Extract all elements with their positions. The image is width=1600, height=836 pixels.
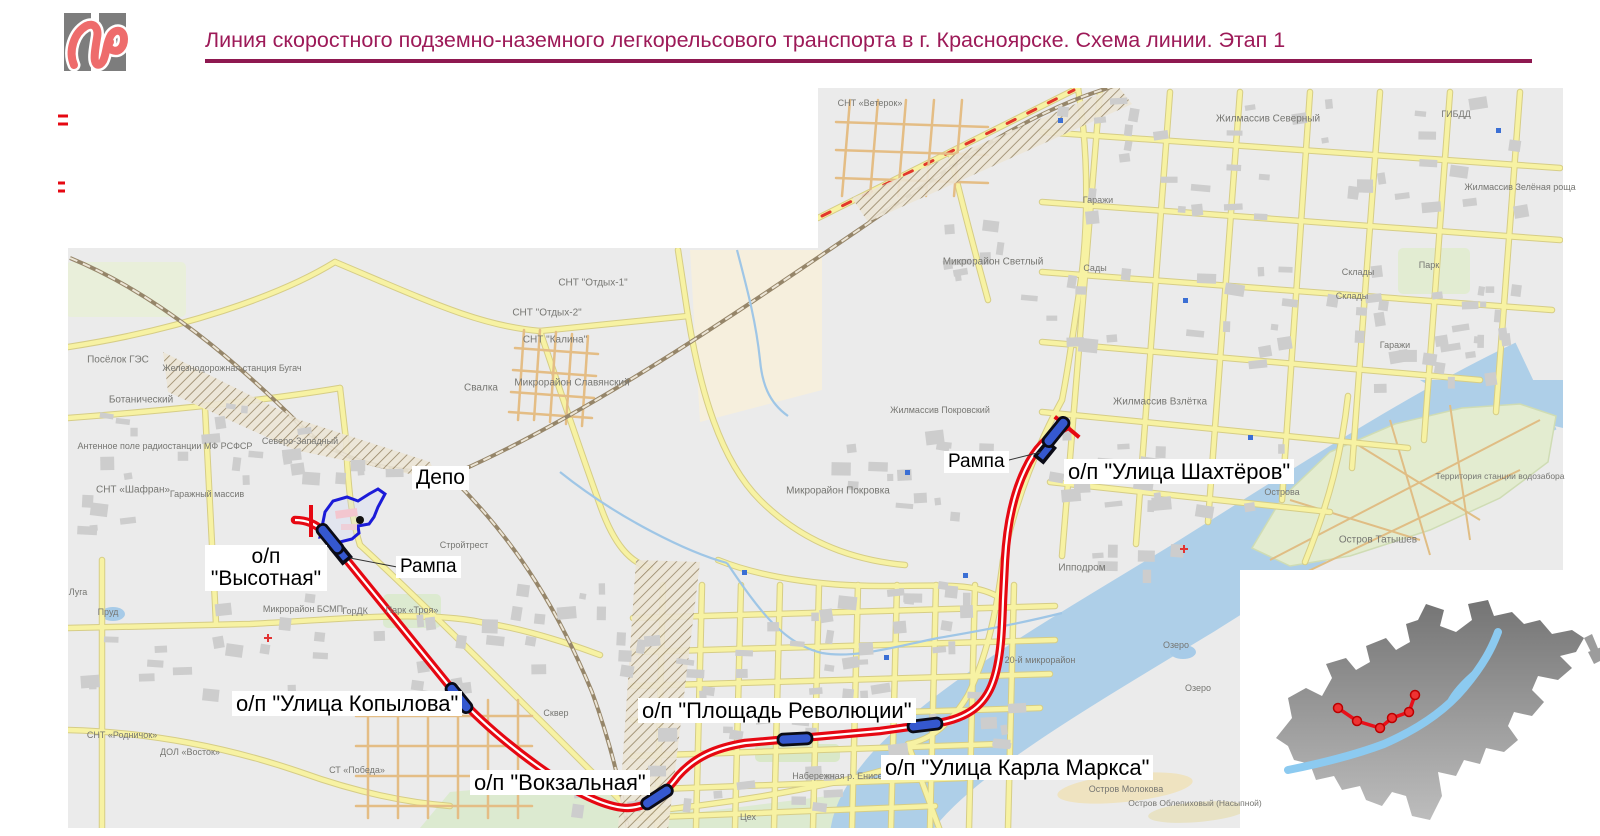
map-place-label: Остров Татышев [1339, 535, 1417, 546]
map-place-label: Острова [1264, 487, 1299, 497]
map-place-label: Микрорайон Славянский [514, 378, 629, 389]
map-place-label: Жилмассив Северный [1216, 114, 1320, 125]
station-capsule [778, 733, 813, 746]
station-label-shakhtyorov: о/п "Улица Шахтёров" [1064, 459, 1294, 484]
station-label-karla-marksa: о/п "Улица Карла Маркса" [881, 755, 1153, 780]
map-place-label: Склады [1336, 291, 1369, 301]
inset-station-dot [1353, 717, 1362, 726]
station-label-vysotnaya: о/п "Высотная" [205, 545, 327, 591]
map-place-label: Гаражи [1083, 195, 1113, 205]
map-place-label: Территория станции водозабора [1435, 471, 1564, 481]
map-place-label: Пруд [98, 607, 119, 617]
map-place-label: СНТ "Отдых-2" [512, 308, 581, 319]
map-place-label: Северо-Западный [262, 436, 338, 446]
map-place-label: Жилмассив Покровский [890, 405, 990, 415]
inset-station-dot [1388, 714, 1397, 723]
map-place-label: Остров Облепиховый (Насыпной) [1128, 798, 1262, 808]
metro-logo-icon [64, 13, 128, 73]
map-place-label: СНТ «Ветерок» [838, 98, 903, 108]
page-container: Линия скоростного подземно-наземного лег… [0, 0, 1600, 836]
inset-station-dot [1405, 708, 1414, 717]
map-place-label: Железнодорожная станция Бугач [162, 363, 301, 373]
map-place-label: Микрорайон БСМП [263, 604, 343, 614]
map-place-label: Стройтрест [440, 540, 488, 550]
map-place-label: 20-й микрорайон [1005, 655, 1076, 665]
title-underline [205, 59, 1532, 63]
map-place-label: Жилмассив Зелёная роща [1464, 182, 1575, 192]
map-place-label: Озеро [1185, 683, 1211, 693]
map-place-label: Склады [1342, 267, 1375, 277]
map-place-label: Парк «Троя» [386, 605, 439, 615]
map-place-label: Ботанический [109, 395, 173, 406]
map-place-label: Свалка [464, 383, 498, 394]
station-label-kopylova: о/п "Улица Копылова" [232, 691, 462, 716]
station-label-depo: Депо [412, 466, 469, 490]
map-place-label: Луга [69, 587, 88, 597]
map-place-label: СНТ "Калина" [523, 335, 587, 346]
page-title: Линия скоростного подземно-наземного лег… [205, 28, 1285, 53]
map-place-label: Набережная р. Енисей [792, 771, 887, 781]
station-label-rampa-east: Рампа [944, 451, 1009, 473]
station-label-vokzalnaya: о/п "Вокзальная" [470, 770, 650, 795]
legend-backdrop [68, 88, 818, 248]
map-place-label: Сады [1083, 263, 1106, 273]
city-silhouette [1240, 570, 1600, 836]
map-place-label: Озеро [1163, 640, 1189, 650]
map-place-label: ДОЛ «Восток» [160, 747, 220, 757]
map-place-label: Микрорайон Покровка [786, 486, 890, 497]
map-place-label: СНТ «Шафран» [96, 485, 170, 496]
map-place-label: Микрорайон Светлый [943, 257, 1044, 268]
map-place-label: ГИБДД [1441, 109, 1470, 119]
station-label-rampa-west: Рампа [396, 556, 461, 578]
station-label-ploshchad-revolyutsii: о/п "Площадь Революции" [638, 698, 916, 723]
map-place-label: СТ «Победа» [329, 765, 385, 775]
map-place-label: ГорДК [342, 606, 368, 616]
inset-station-dot [1334, 704, 1343, 713]
inset-station-dot [1411, 691, 1420, 700]
map-place-label: Сквер [543, 708, 568, 718]
map-place-label: СНТ «Родничок» [87, 730, 157, 740]
map-place-label: Гаражи [1380, 340, 1410, 350]
city-shape [1276, 600, 1584, 820]
map-place-label: Жилмассив Взлётка [1113, 397, 1207, 408]
map-place-label: Ипподром [1058, 563, 1105, 574]
map-place-label: Антенное поле радиостанции МФ РСФСР [78, 441, 253, 451]
map-place-label: Гаражный массив [170, 489, 244, 499]
inset-map [1240, 570, 1600, 836]
map-place-label: Посёлок ГЭС [87, 355, 149, 366]
inset-station-dot [1376, 724, 1385, 733]
map-place-label: Цех [740, 812, 756, 822]
map-place-label: Парк [1419, 260, 1439, 270]
map-place-label: СНТ "Отдых-1" [558, 278, 627, 289]
map-place-label: Остров Молокова [1089, 784, 1163, 794]
